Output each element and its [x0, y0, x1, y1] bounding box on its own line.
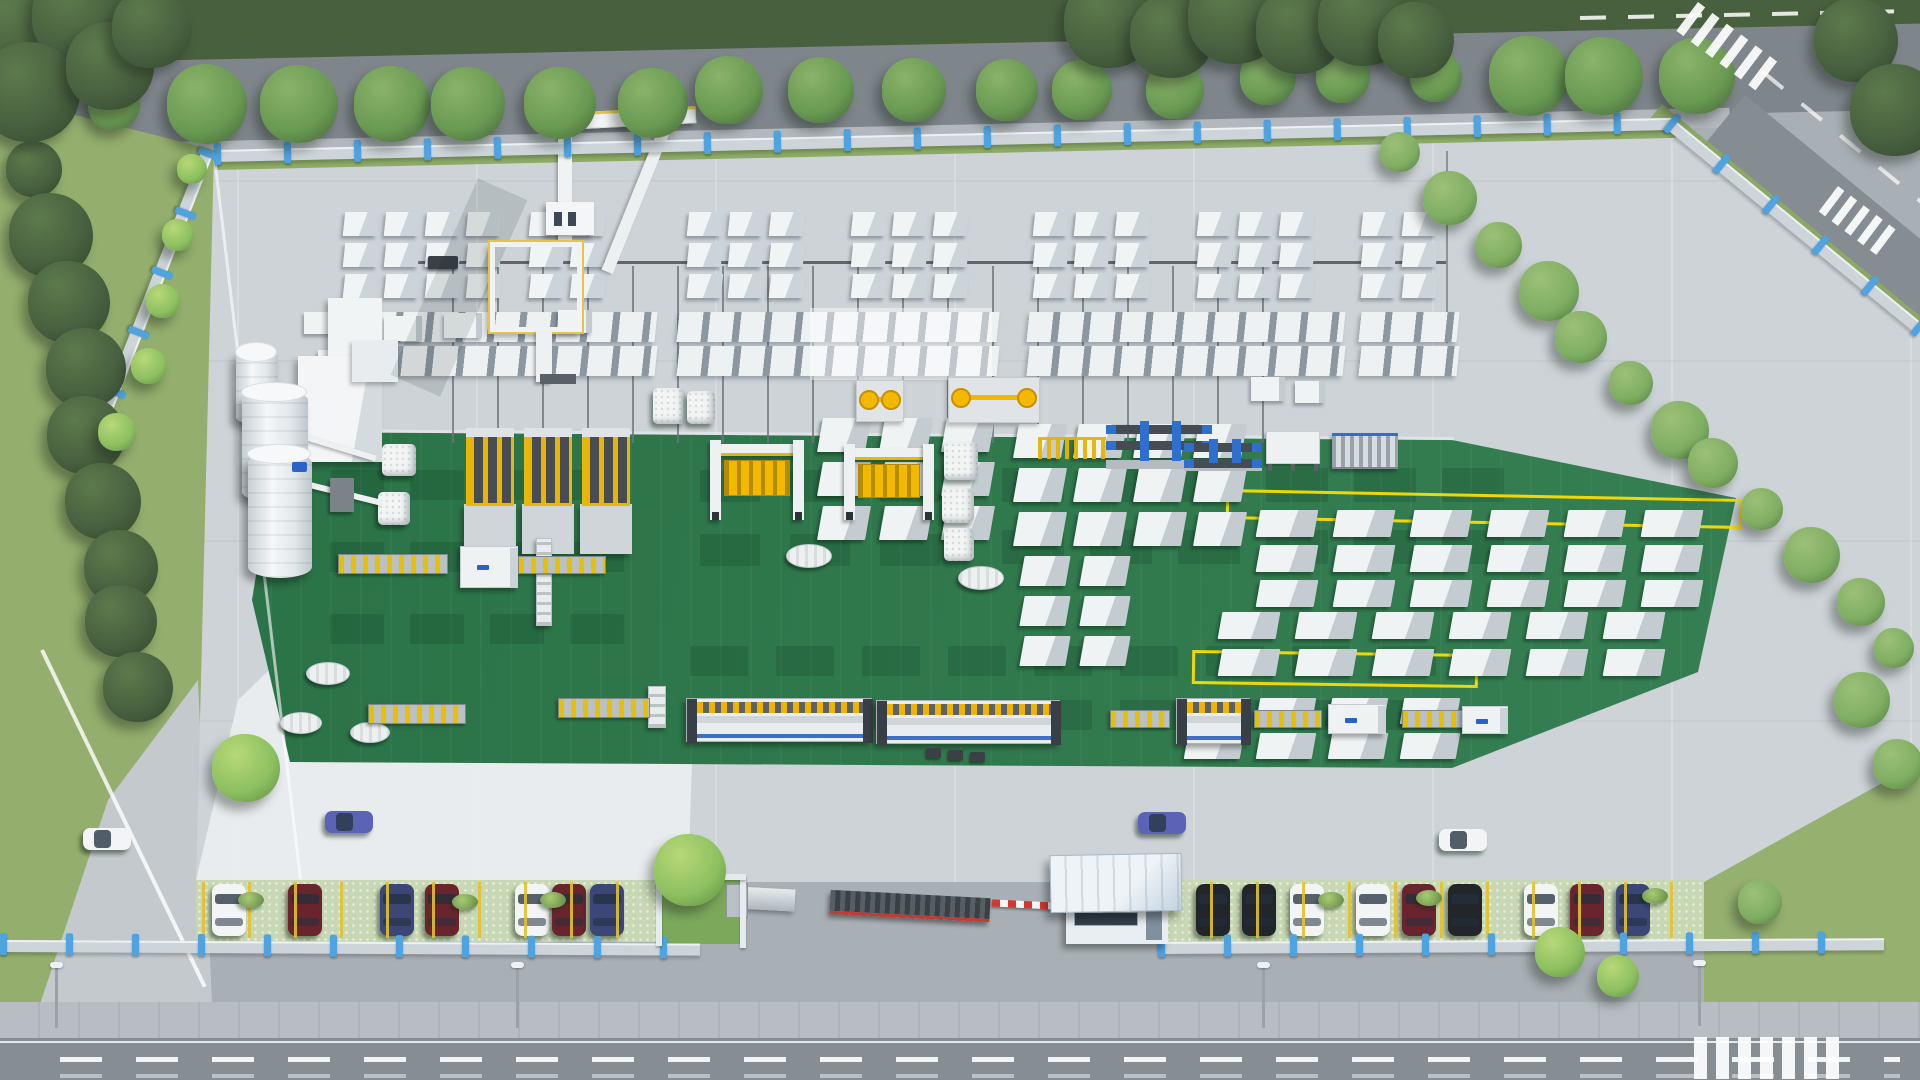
block-stack [1238, 274, 1275, 298]
product-pallet [1256, 545, 1319, 572]
disc-left [951, 388, 971, 408]
fence-post-blue [66, 933, 73, 955]
block-stack [1238, 212, 1275, 236]
roller-conveyor-station [1332, 433, 1398, 469]
cap-left [1184, 443, 1194, 452]
accordion-sliding-gate [829, 890, 990, 922]
block-stack [1115, 212, 1152, 236]
crane-c-frame [490, 242, 582, 332]
stall-line [386, 882, 389, 938]
fence-post-blue [354, 140, 361, 162]
left-forest-column [65, 463, 141, 539]
crane-cab [546, 202, 594, 235]
end-left [687, 699, 697, 743]
right-fence-trees [1874, 628, 1914, 668]
slat-conveyor [1254, 710, 1322, 728]
car-glass [1149, 814, 1166, 832]
product-pallet [1564, 510, 1627, 537]
floor-pit [410, 614, 464, 644]
frame-top [466, 428, 514, 437]
product-pallet [1256, 510, 1319, 537]
shade [510, 548, 518, 588]
wheel [795, 512, 802, 520]
block-stack [933, 274, 970, 298]
stall-line [340, 882, 343, 938]
demould-station-2 [522, 428, 574, 554]
block-stack [769, 243, 806, 267]
product-pallet [1372, 612, 1435, 639]
floor-pit [690, 646, 748, 676]
product-pallet [1410, 545, 1473, 572]
product-pallet [1073, 512, 1127, 546]
parked-car-maroon [1570, 884, 1604, 936]
top-road-trees [354, 66, 430, 142]
product-pallet [1333, 545, 1396, 572]
bottom-sidewalk [0, 1002, 1920, 1040]
stall-line [524, 882, 527, 938]
parked-car-white [212, 884, 246, 936]
shade [1279, 377, 1285, 401]
cutting-line-1 [686, 698, 872, 742]
fence-post-blue [1194, 121, 1201, 143]
fence-post-blue [424, 138, 431, 160]
stall-line [432, 882, 435, 938]
car-glass [1359, 894, 1387, 904]
block-stack-row [1026, 346, 1345, 376]
car-glass [1245, 894, 1273, 904]
frame-top [582, 428, 630, 437]
block-stack [687, 243, 724, 267]
logo-chip [477, 565, 489, 570]
product-pallet [1079, 556, 1130, 586]
guardhouse-window-band [1074, 912, 1138, 926]
product-pallet [1218, 649, 1281, 676]
block-stack [384, 243, 421, 267]
cap-right [1252, 443, 1262, 452]
block-stack [1402, 243, 1439, 267]
top-road-trees [695, 56, 763, 124]
parked-car-white [515, 884, 549, 936]
stall-line [1256, 882, 1259, 938]
crosswalk-stripe [1738, 1037, 1751, 1079]
block-stack [687, 274, 724, 298]
crosswalk-stripe [1804, 1037, 1817, 1079]
demould-station-3 [580, 428, 632, 554]
block-stack [1197, 243, 1234, 267]
bottom-road-center-dashes [60, 1057, 1900, 1062]
top-road-trees [167, 64, 247, 144]
car-glass [1359, 918, 1387, 926]
blue-rail [1187, 736, 1241, 740]
block-stack-row [1026, 312, 1345, 342]
block-stack [769, 212, 806, 236]
product-pallet [1019, 636, 1070, 666]
fence-post-blue [1290, 934, 1297, 956]
block-stack [1115, 243, 1152, 267]
green-cake-pallet [687, 391, 715, 424]
street-lamp-pole [55, 966, 58, 1028]
floor-pit [776, 646, 834, 676]
crosswalk-stripe [1826, 1037, 1839, 1079]
block-stack-bright [810, 308, 992, 380]
fence-post-blue [1818, 932, 1825, 954]
wheel [712, 512, 719, 520]
end-right [863, 699, 873, 743]
floor-pit [862, 646, 920, 676]
beam [1184, 459, 1262, 468]
ferry-cart [926, 748, 941, 758]
green-cake-pallet [378, 492, 410, 525]
block-stack [384, 274, 421, 298]
fence-post-blue [1334, 118, 1341, 140]
product-pallet [1449, 612, 1512, 639]
block-stack [1361, 212, 1398, 236]
floor-pit [570, 614, 624, 644]
block-stack [1074, 243, 1111, 267]
block-stack [1361, 274, 1398, 298]
fence-post-blue [1614, 112, 1621, 134]
post [1172, 421, 1181, 461]
stall-line [616, 882, 619, 938]
leg [1291, 464, 1295, 471]
left-forest-column [6, 141, 62, 197]
car-glass [1293, 918, 1321, 926]
beam [1184, 443, 1262, 452]
stall-line [1624, 882, 1627, 938]
product-pallet [1218, 612, 1281, 639]
left-inner-saplings [162, 219, 194, 251]
street-lamp-head [511, 962, 524, 968]
parked-car-white [1290, 884, 1324, 936]
right-fence-trees [1423, 171, 1477, 225]
block-stack [1074, 212, 1111, 236]
car-glass [336, 813, 353, 831]
cab-window [554, 212, 562, 226]
top-road-trees [1489, 36, 1569, 116]
fence-post-blue [774, 131, 781, 153]
guardhouse-roof [1050, 853, 1183, 913]
left-forest-column [103, 652, 173, 722]
product-pallet [1333, 510, 1396, 537]
control-cabin [460, 546, 518, 588]
parking-bush [238, 892, 264, 908]
left-inner-saplings [131, 348, 167, 384]
green-cake-pallet [944, 442, 978, 480]
right-fence-trees [1609, 361, 1653, 405]
turntable [958, 566, 1004, 590]
fence-post-blue [1224, 935, 1231, 957]
block-stack [1115, 274, 1152, 298]
car-glass [555, 918, 583, 926]
left-inner-saplings [146, 284, 180, 318]
fence-post-blue [198, 934, 205, 956]
beam [1106, 425, 1212, 434]
block-stack [1033, 274, 1070, 298]
silo-cap [247, 444, 311, 464]
stall-line [1394, 882, 1397, 938]
parked-car-black [1196, 884, 1230, 936]
crane-foot [540, 374, 576, 384]
dark-shed [330, 478, 354, 512]
right-fence-trees [1837, 578, 1885, 626]
green-cake-pallet [382, 444, 416, 476]
right-fence-trees [1741, 488, 1783, 530]
parking-bush [1642, 888, 1668, 904]
body [724, 460, 790, 496]
product-pallet [1641, 580, 1704, 607]
green-cake-pallet [653, 388, 685, 424]
block-stack [1197, 212, 1234, 236]
product-pallet [1013, 512, 1067, 546]
left-inner-saplings [98, 413, 136, 451]
barrier-arm [992, 899, 1056, 909]
fence-post-blue [330, 935, 337, 957]
product-pallet [1256, 733, 1317, 759]
pedestal [580, 504, 632, 554]
silo-annex [352, 340, 398, 382]
product-pallet [1193, 468, 1247, 502]
product-pallet [1256, 580, 1319, 607]
fence-post-blue [704, 132, 711, 154]
fence-post-blue [1054, 124, 1061, 146]
fence-post-blue [1356, 934, 1363, 956]
product-pallet [1487, 580, 1550, 607]
frame-top [524, 428, 572, 437]
fence-post-blue [594, 936, 601, 958]
top-road-trees [976, 59, 1038, 121]
cutting-line-3 [1176, 698, 1250, 744]
bottom-road-edge-line [0, 1041, 1920, 1043]
slat-conveyor [368, 704, 466, 724]
slat-conveyor [1110, 710, 1170, 728]
block-stack [1033, 243, 1070, 267]
top-road-trees [1052, 60, 1112, 120]
stall-line [478, 882, 481, 938]
stall-line [248, 882, 251, 938]
blue-sedan-driving [325, 811, 373, 833]
bed [697, 716, 863, 723]
slat-conveyor [518, 556, 606, 574]
left-inner-saplings [177, 154, 207, 184]
bed [887, 718, 1051, 725]
yellow-safety-rack [1038, 437, 1106, 459]
car-glass [1450, 831, 1467, 849]
guardhouse-door [1146, 910, 1162, 940]
product-pallet [1449, 649, 1512, 676]
right-fence-trees [1784, 527, 1840, 583]
fence-post-blue [1752, 932, 1759, 954]
block-stack [1279, 212, 1316, 236]
shade [1378, 706, 1386, 734]
small-shed [1295, 381, 1325, 403]
block-stack [384, 212, 421, 236]
left-forest-column [85, 585, 157, 657]
fence-post-blue [1264, 120, 1271, 142]
block-stack [1033, 212, 1070, 236]
yellow-frame [524, 428, 572, 506]
teeth [887, 704, 1051, 715]
product-pallet [1013, 468, 1067, 502]
yellow-frame [466, 428, 514, 506]
block-stack [1197, 274, 1234, 298]
logo-chip [1345, 718, 1357, 723]
car-glass [1293, 894, 1321, 904]
parking-bush [1416, 890, 1442, 906]
parking-bush [452, 894, 478, 910]
teeth [697, 702, 863, 713]
floor-pit [948, 646, 1006, 676]
street-lamp-head [50, 962, 63, 968]
block-stack [343, 243, 380, 267]
street-lamp-pole [1262, 966, 1265, 1028]
block-stack [1279, 274, 1316, 298]
stall-line [1486, 882, 1489, 938]
fence-post-blue [494, 137, 501, 159]
leg-left [710, 440, 721, 520]
product-pallet [1079, 636, 1130, 666]
parking-bush [540, 892, 566, 908]
car-glass [1199, 918, 1227, 926]
product-pallet [1295, 649, 1358, 676]
car-glass [1245, 918, 1273, 926]
top-road-trees [431, 67, 505, 141]
car-glass [215, 918, 243, 926]
leg-right [923, 444, 934, 520]
block-stack [728, 274, 765, 298]
disc-left [859, 390, 879, 410]
stall-line [1302, 882, 1305, 938]
stall-line [1440, 882, 1443, 938]
floor-pit [1120, 646, 1178, 676]
turntable [306, 662, 350, 685]
crosswalk-stripe [1694, 1037, 1707, 1079]
product-pallet [1603, 649, 1666, 676]
rotary-unloader-1 [856, 380, 904, 422]
block-stack [1238, 243, 1275, 267]
block-stack [728, 243, 765, 267]
fence-post-blue [1422, 934, 1429, 956]
crosswalk-stripe [1782, 1037, 1795, 1079]
right-fence-trees [1688, 438, 1738, 488]
car-glass [1451, 894, 1479, 904]
product-pallet [1019, 556, 1070, 586]
turntable [350, 722, 390, 743]
cap-right [1202, 425, 1212, 434]
tree [1378, 2, 1454, 78]
product-pallet [1564, 545, 1627, 572]
right-fence-trees [1555, 311, 1607, 363]
block-stack [343, 274, 380, 298]
top-road-trees [882, 58, 946, 122]
cap-left [1106, 425, 1116, 434]
stall-line [570, 882, 573, 938]
line-end-unit [1328, 704, 1386, 734]
top-road-trees [788, 57, 854, 123]
product-pallet [1487, 545, 1550, 572]
fence-post-blue [844, 129, 851, 151]
cab-window [568, 212, 576, 226]
rotary-unloader-2 [948, 377, 1040, 423]
end-left [1177, 699, 1187, 745]
straddle-carrier-1 [710, 440, 804, 520]
top-road-trees [260, 65, 338, 143]
parking-bush [1318, 892, 1344, 908]
tree [1597, 955, 1639, 997]
line-end-unit [1462, 706, 1508, 734]
product-pallet [1603, 612, 1666, 639]
street-lamp-pole [1698, 964, 1701, 1026]
ferry-cart [948, 750, 963, 760]
parked-car-white [1356, 884, 1390, 936]
fence-post-blue [634, 134, 641, 156]
fence-post-blue [1686, 932, 1693, 954]
green-cake-pallet [942, 488, 974, 523]
floor-pit [410, 470, 464, 500]
top-road-trees [1565, 37, 1643, 115]
right-fence-trees [1476, 222, 1522, 268]
crosswalk-bottom-road [1694, 1037, 1848, 1079]
factory-aerial-render [0, 0, 1920, 1080]
blue-rail [697, 734, 863, 738]
floor-pit [700, 534, 760, 566]
slat-conveyor [338, 554, 448, 574]
crosswalk-stripe [1760, 1037, 1773, 1079]
fence-post-blue [914, 127, 921, 149]
block-stack [687, 212, 724, 236]
ferry-cart [970, 752, 985, 762]
fence-post-blue [1488, 933, 1495, 955]
product-pallet [1526, 612, 1589, 639]
elevator-mast [536, 538, 552, 626]
stall-line [202, 882, 205, 938]
stall-line [1210, 882, 1213, 938]
cap-right [1252, 459, 1262, 468]
block-stack [343, 212, 380, 236]
post [1140, 421, 1149, 461]
fence-post-blue [984, 126, 991, 148]
top-road-trees [618, 68, 688, 138]
product-pallet [1641, 545, 1704, 572]
shade [1500, 708, 1508, 734]
tree [1535, 927, 1585, 977]
silo-logo-mark [292, 462, 307, 472]
crosswalk-stripe [1716, 1037, 1729, 1079]
fence-post-blue [1474, 115, 1481, 137]
fence-post-blue [264, 934, 271, 956]
product-pallet [1295, 612, 1358, 639]
street-lamp-pole [516, 966, 519, 1028]
fence-post-blue [132, 934, 139, 956]
bed [1187, 716, 1241, 723]
product-pallet [1372, 649, 1435, 676]
cutting-line-2 [876, 700, 1060, 744]
parked-car-maroon [425, 884, 459, 936]
cap-left [1184, 459, 1194, 468]
silo-cap [241, 382, 307, 402]
post [1209, 439, 1218, 463]
body [858, 464, 920, 498]
block-stack-row [1358, 346, 1459, 376]
product-pallet [1400, 733, 1461, 759]
beam [714, 444, 800, 456]
block-stack [933, 212, 970, 236]
bottom-road-far-dashes [60, 1074, 1900, 1078]
straddle-carrier-2 [844, 444, 934, 520]
leg [1268, 464, 1272, 471]
leg-left [844, 444, 855, 520]
turntable [786, 544, 832, 568]
shade [586, 310, 592, 333]
